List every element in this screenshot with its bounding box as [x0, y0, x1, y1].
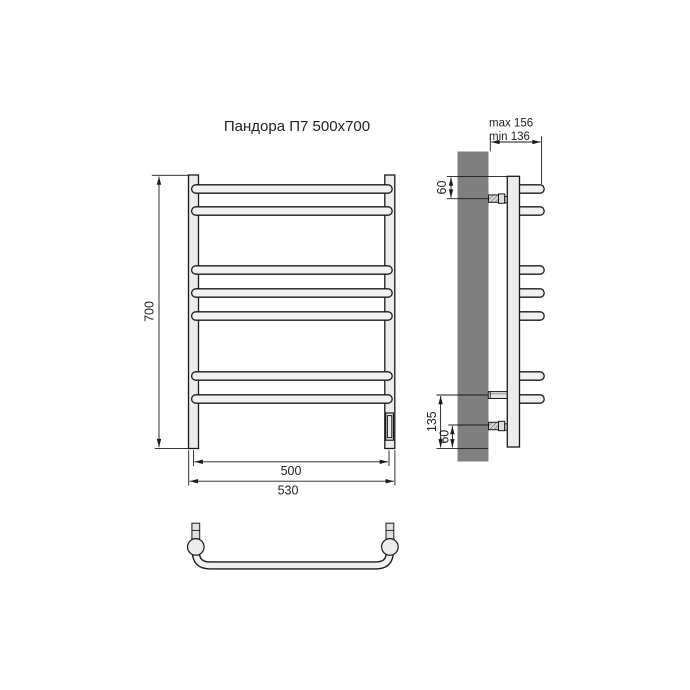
drawing-title: Пандора П7 500x700: [224, 118, 370, 135]
front-rung-3: [192, 266, 393, 274]
side-fitting-top-thread: [489, 195, 499, 202]
dim-700-label: 700: [143, 301, 157, 322]
wall: [458, 152, 489, 462]
front-rung-4: [192, 289, 393, 297]
side-fitting-bottom-thread: [489, 422, 499, 429]
side-fitting-bottom-collar: [499, 421, 505, 430]
side-fitting-top-collar: [499, 194, 505, 203]
top-view-left-stem: [192, 523, 200, 540]
side-fitting-top: [489, 194, 508, 203]
top-view-right-ball: [382, 539, 399, 556]
side-bracket-middle: [488, 392, 507, 399]
technical-drawing: Пандора П7 500x700 700 500: [0, 0, 690, 690]
drawing-background: [0, 0, 690, 690]
top-view-left-ball: [188, 539, 205, 556]
front-rung-1: [192, 185, 393, 193]
dim-top60-label: 60: [435, 181, 449, 195]
heater-box-inner: [387, 416, 391, 438]
front-rung-5: [192, 312, 393, 320]
front-rung-2: [192, 207, 393, 215]
side-bracket-middle-body: [488, 392, 507, 399]
dim-depth-min-label: min 136: [489, 131, 530, 143]
dim-500-label: 500: [281, 464, 302, 478]
top-view-right-stem: [386, 523, 394, 540]
front-rung-7: [192, 395, 393, 403]
front-rung-6: [192, 372, 393, 380]
dim-530-label: 530: [278, 484, 299, 498]
dim-depth-max-label: max 156: [489, 118, 533, 130]
dim-bot60-label: 60: [437, 430, 451, 444]
dim-135-label: 135: [425, 411, 439, 432]
side-post: [507, 176, 519, 447]
side-fitting-bottom: [489, 421, 508, 430]
